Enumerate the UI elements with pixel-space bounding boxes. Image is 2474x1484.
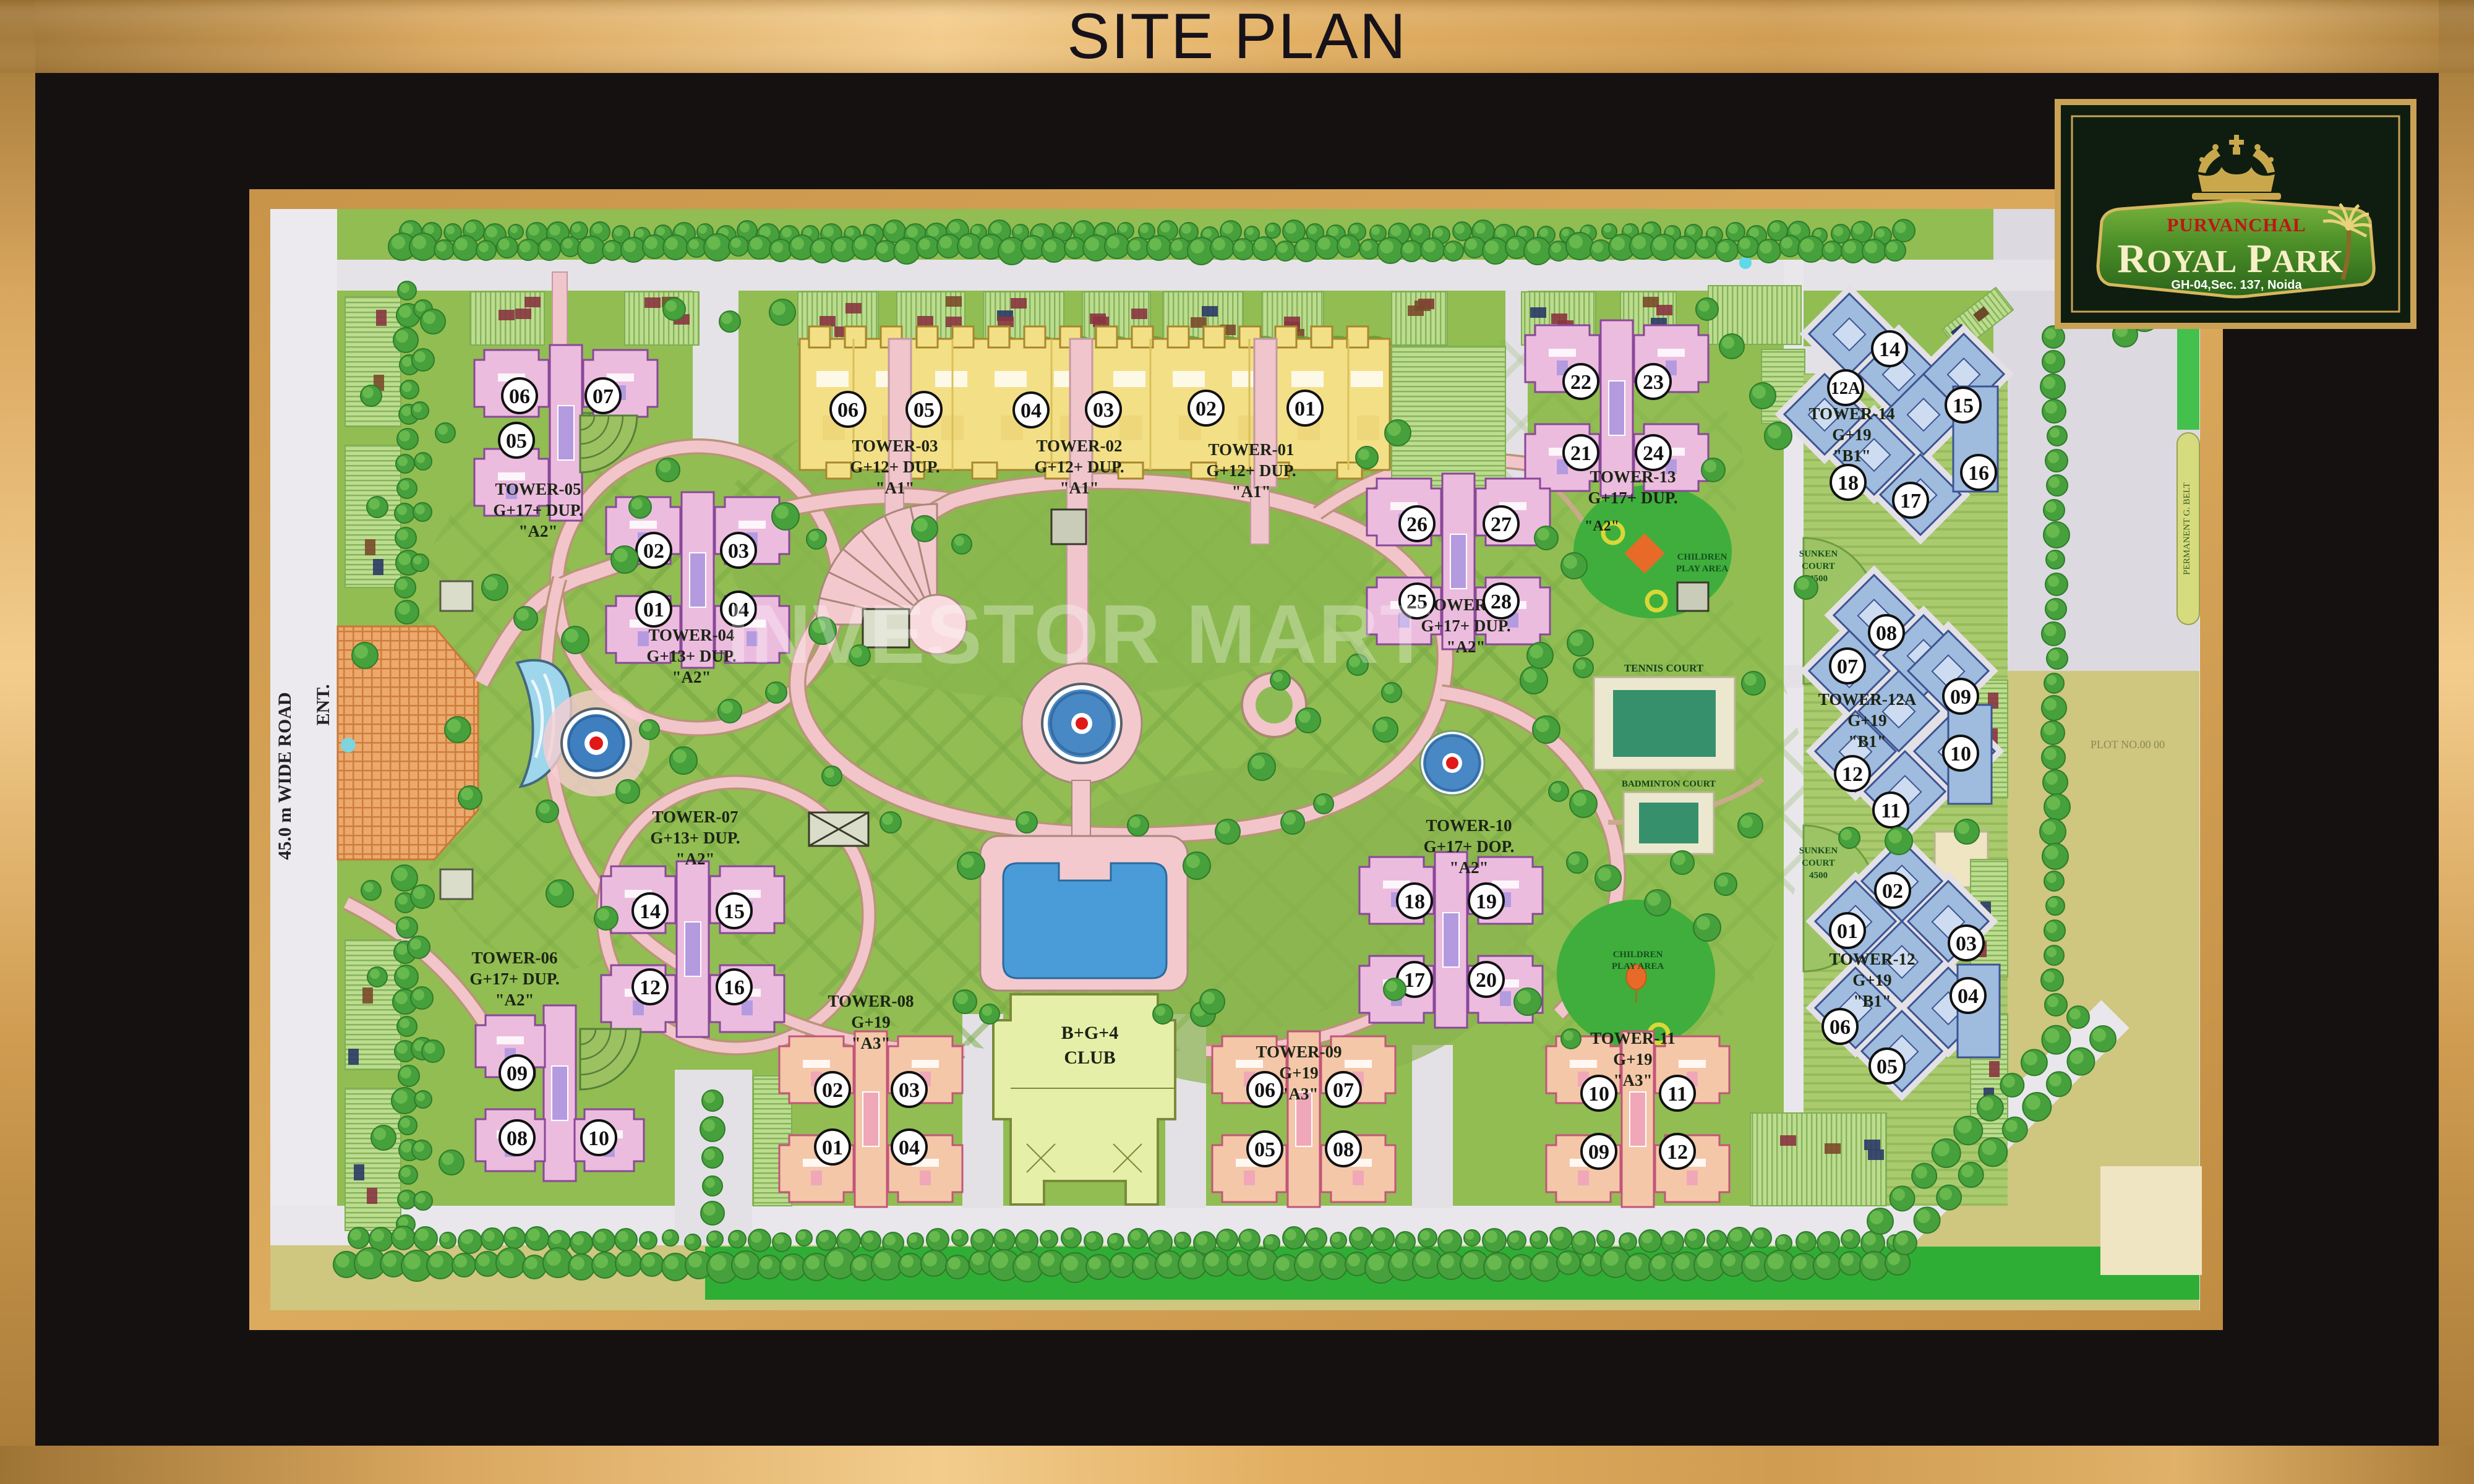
svg-text:B+G+4: B+G+4	[1061, 1023, 1119, 1043]
svg-text:G+13+ DUP.: G+13+ DUP.	[650, 829, 740, 847]
svg-text:"A2": "A2"	[495, 991, 534, 1009]
svg-text:G+19: G+19	[1852, 971, 1891, 989]
svg-text:G+12+ DUP.: G+12+ DUP.	[850, 458, 940, 476]
svg-text:12: 12	[1842, 763, 1863, 786]
svg-text:"A1": "A1"	[876, 479, 915, 497]
svg-text:INVESTOR MART: INVESTOR MART	[726, 587, 1432, 681]
svg-text:COURT: COURT	[1802, 858, 1835, 868]
svg-text:TOWER-09: TOWER-09	[1256, 1043, 1342, 1061]
svg-text:"A1": "A1"	[1232, 482, 1271, 501]
svg-text:18: 18	[1404, 890, 1425, 913]
svg-text:17: 17	[1900, 490, 1921, 513]
svg-text:17: 17	[1404, 969, 1425, 992]
svg-text:TOWER-10: TOWER-10	[1426, 816, 1512, 835]
svg-text:12: 12	[640, 976, 661, 999]
svg-text:06: 06	[509, 385, 530, 408]
svg-text:SUNKEN: SUNKEN	[1799, 549, 1838, 559]
svg-text:26: 26	[1406, 513, 1427, 536]
svg-text:SITE PLAN: SITE PLAN	[1067, 1, 1407, 72]
svg-text:TOWER-02: TOWER-02	[1036, 437, 1122, 455]
svg-text:TOWER-01: TOWER-01	[1208, 440, 1294, 459]
svg-text:20: 20	[1476, 969, 1497, 992]
svg-text:TOWER-13: TOWER-13	[1590, 467, 1676, 486]
svg-text:"A3": "A3"	[1614, 1071, 1653, 1090]
svg-text:03: 03	[899, 1079, 920, 1102]
svg-text:G+12+ DUP.: G+12+ DUP.	[1206, 461, 1296, 480]
svg-text:21: 21	[1570, 442, 1591, 465]
svg-text:G+12+ DUP.: G+12+ DUP.	[1034, 458, 1124, 476]
svg-text:12A: 12A	[1831, 379, 1861, 398]
svg-text:TOWER-14: TOWER-14	[1808, 404, 1894, 423]
svg-text:06: 06	[1830, 1016, 1851, 1039]
svg-text:15: 15	[1953, 394, 1974, 417]
svg-text:BADMINTON COURT: BADMINTON COURT	[1622, 779, 1716, 789]
svg-text:45.0 m WIDE ROAD: 45.0 m WIDE ROAD	[275, 692, 295, 859]
svg-text:G+17+ DUP.: G+17+ DUP.	[469, 970, 559, 988]
svg-text:02: 02	[1196, 398, 1217, 420]
svg-text:"B1": "B1"	[1833, 446, 1871, 465]
svg-text:TOWER-03: TOWER-03	[852, 437, 938, 455]
svg-text:4500: 4500	[1809, 871, 1828, 881]
svg-text:G+19: G+19	[1847, 711, 1886, 730]
svg-text:"A2": "A2"	[672, 668, 711, 686]
svg-text:03: 03	[1093, 399, 1114, 422]
svg-text:TOWER-08: TOWER-08	[828, 992, 914, 1010]
svg-text:PERMANENT G. BELT: PERMANENT G. BELT	[2182, 482, 2192, 575]
svg-text:PLAY AREA: PLAY AREA	[1676, 564, 1728, 574]
svg-text:CLUB: CLUB	[1064, 1047, 1115, 1068]
svg-text:"A2": "A2"	[519, 522, 558, 540]
svg-text:"A1": "A1"	[1060, 479, 1099, 497]
svg-text:05: 05	[1877, 1055, 1898, 1078]
svg-text:08: 08	[1876, 622, 1897, 645]
svg-text:PURVANCHAL: PURVANCHAL	[2167, 214, 2306, 236]
svg-text:CHILDREN: CHILDREN	[1613, 950, 1663, 960]
svg-text:09: 09	[1950, 686, 1971, 709]
svg-text:"A3": "A3"	[1280, 1085, 1319, 1103]
svg-text:04: 04	[899, 1136, 920, 1159]
svg-text:G+19: G+19	[1832, 425, 1871, 444]
svg-text:16: 16	[724, 976, 745, 999]
svg-text:22: 22	[1570, 371, 1591, 394]
svg-text:03: 03	[1956, 932, 1977, 955]
svg-text:"A2": "A2"	[1447, 638, 1486, 656]
svg-text:23: 23	[1643, 371, 1664, 394]
svg-text:07: 07	[1333, 1079, 1354, 1102]
svg-text:G+17+ DUP.: G+17+ DUP.	[493, 501, 583, 519]
svg-text:TOWER-07: TOWER-07	[652, 808, 738, 826]
svg-text:01: 01	[1295, 398, 1316, 420]
svg-text:06: 06	[837, 399, 858, 422]
svg-text:14: 14	[1879, 338, 1900, 361]
svg-text:PLAY AREA: PLAY AREA	[1612, 962, 1664, 971]
svg-text:G+19: G+19	[1279, 1064, 1318, 1082]
svg-text:"B1": "B1"	[1848, 732, 1886, 751]
svg-text:03: 03	[728, 540, 749, 563]
svg-text:01: 01	[643, 599, 664, 621]
svg-text:01: 01	[1837, 920, 1858, 943]
svg-text:05: 05	[506, 430, 527, 453]
svg-text:06: 06	[1254, 1079, 1275, 1102]
svg-text:GH-04,Sec. 137, Noida: GH-04,Sec. 137, Noida	[2171, 278, 2302, 292]
svg-text:TENNIS COURT: TENNIS COURT	[1624, 662, 1704, 674]
svg-text:10: 10	[1588, 1083, 1609, 1106]
svg-text:08: 08	[507, 1127, 528, 1150]
svg-text:G+17+ DOP.: G+17+ DOP.	[1424, 837, 1515, 856]
svg-text:16: 16	[1968, 462, 1989, 485]
svg-text:TOWER-04: TOWER-04	[648, 626, 734, 644]
svg-text:08: 08	[1333, 1138, 1354, 1161]
svg-text:G+19: G+19	[1613, 1050, 1652, 1068]
svg-text:TOWER-06: TOWER-06	[471, 949, 557, 967]
svg-text:11: 11	[1667, 1083, 1687, 1106]
svg-text:SUNKEN: SUNKEN	[1799, 846, 1838, 856]
svg-text:04: 04	[1958, 985, 1979, 1008]
svg-text:COURT: COURT	[1802, 561, 1835, 571]
svg-text:G+19: G+19	[851, 1013, 890, 1031]
svg-text:PLOT NO.00 00: PLOT NO.00 00	[2091, 738, 2165, 751]
svg-text:TOWER-12: TOWER-12	[1829, 950, 1915, 968]
svg-text:24: 24	[1643, 442, 1664, 465]
svg-text:05: 05	[1254, 1138, 1275, 1161]
svg-text:02: 02	[643, 540, 664, 563]
svg-text:28: 28	[1491, 591, 1512, 613]
svg-text:"A3": "A3"	[852, 1034, 891, 1052]
svg-text:01: 01	[822, 1136, 843, 1159]
svg-text:G+17+ DUP.: G+17+ DUP.	[1421, 616, 1510, 635]
svg-text:TOWER-05: TOWER-05	[495, 480, 581, 498]
svg-text:"B1": "B1"	[1853, 992, 1891, 1010]
svg-text:19: 19	[1476, 890, 1497, 913]
svg-text:G+13+ DUP.: G+13+ DUP.	[646, 647, 736, 665]
svg-text:27: 27	[1491, 513, 1512, 536]
svg-text:12: 12	[1667, 1141, 1688, 1164]
svg-text:05: 05	[914, 399, 935, 422]
svg-text:04: 04	[1021, 399, 1042, 422]
svg-text:07: 07	[1837, 655, 1858, 678]
svg-text:TOWER-12A: TOWER-12A	[1818, 690, 1917, 709]
svg-text:CHILDREN: CHILDREN	[1677, 552, 1727, 562]
svg-text:15: 15	[724, 900, 745, 923]
svg-text:10: 10	[588, 1127, 609, 1150]
svg-text:"A2": "A2"	[1585, 518, 1619, 534]
svg-text:07: 07	[593, 385, 614, 408]
svg-text:02: 02	[822, 1079, 843, 1102]
svg-text:09: 09	[507, 1062, 528, 1085]
svg-text:ENT.: ENT.	[313, 684, 333, 726]
svg-text:G+17+ DUP.: G+17+ DUP.	[1588, 488, 1677, 507]
svg-text:"A2": "A2"	[676, 850, 715, 868]
svg-text:02: 02	[1882, 880, 1903, 903]
svg-text:"A2": "A2"	[1450, 858, 1489, 877]
svg-text:TOWER-11: TOWER-11	[1590, 1029, 1676, 1047]
svg-text:11: 11	[1881, 800, 1901, 822]
svg-text:10: 10	[1950, 743, 1971, 765]
svg-text:09: 09	[1588, 1141, 1609, 1164]
svg-text:14: 14	[640, 900, 661, 923]
svg-text:18: 18	[1838, 472, 1859, 495]
